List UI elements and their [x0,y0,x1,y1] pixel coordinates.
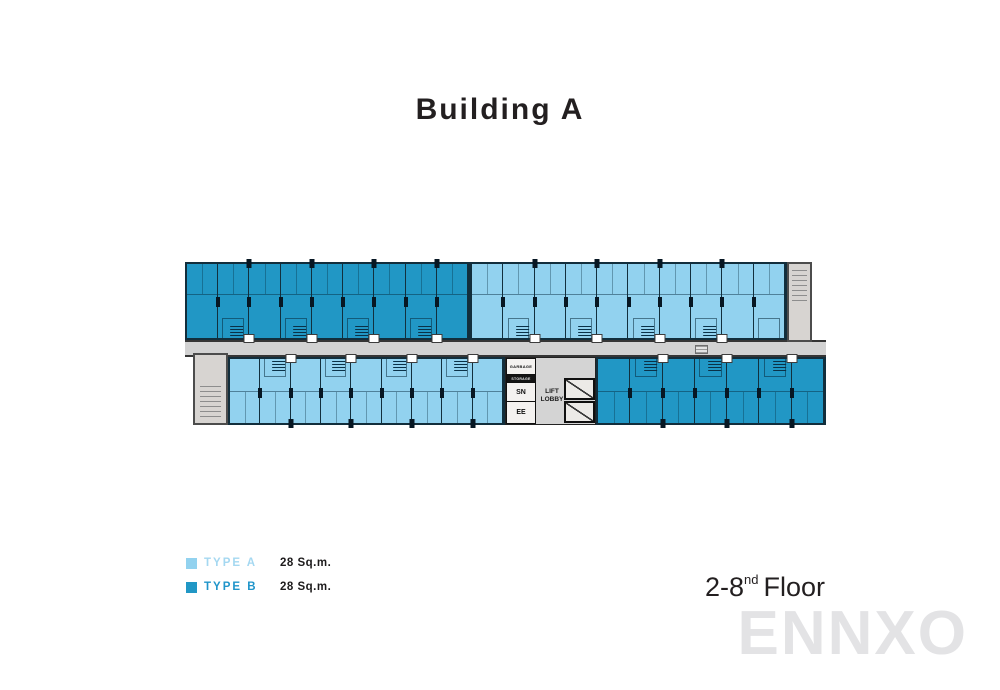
window-mark [720,259,725,268]
wall-column-mark [279,297,283,307]
bottom-band: GARBAGE STORAGE SN EE LIFT LOBBY [185,357,826,425]
wall-column-mark [757,388,761,398]
bathroom-plumbing-icon [355,326,368,336]
bathroom-plumbing-icon [293,326,306,336]
sn-room: SN [506,383,536,402]
unit-door [369,334,380,343]
window-mark [595,259,600,268]
unit-door [306,334,317,343]
ee-room: EE [506,402,536,424]
wall-column-mark [628,388,632,398]
bathroom-plumbing-icon [272,361,285,371]
unit-type-a [722,264,753,338]
window-mark [349,419,354,428]
bathroom-plumbing-icon [773,361,786,371]
bathroom-plumbing-icon [231,326,244,336]
unit-door [407,354,418,363]
bathroom-plumbing-icon [641,326,654,336]
building-plan: GARBAGE STORAGE SN EE LIFT LOBBY [185,262,826,425]
floorplan-page: Building A GARBAGE STORAGE SN EE [0,0,1000,690]
window-mark [247,259,252,268]
wall-column-mark [658,297,662,307]
unit-door [657,354,668,363]
bathroom-plumbing-icon [578,326,591,336]
storage-room: STORAGE [506,375,536,383]
unit-door [467,354,478,363]
lift-icon [564,378,595,400]
type-b-area: 28 Sq.m. [280,581,331,593]
unit-type-b [437,264,468,338]
wall-column-mark [595,297,599,307]
window-mark [470,419,475,428]
window-mark [434,259,439,268]
type-b-swatch [186,582,197,593]
wall-column-mark [404,297,408,307]
wall-column-mark [564,297,568,307]
bathroom-plumbing-icon [418,326,431,336]
unit-type-a [412,359,442,423]
wall-column-mark [752,297,756,307]
window-mark [789,419,794,428]
type-b-label: TYPE B [204,581,280,593]
wall-column-mark [501,297,505,307]
ennxo-watermark: ENNXO [738,598,968,669]
stairwell-left [193,353,228,425]
unit-row-bottom-type-a [228,357,505,425]
unit-door [529,334,540,343]
legend: TYPE A 28 Sq.m. TYPE B 28 Sq.m. [186,556,331,604]
unit-type-a [754,264,785,338]
type-a-swatch [186,558,197,569]
lift-shafts [564,378,595,424]
wall-column-mark [689,297,693,307]
wall-column-mark [247,297,251,307]
wall-column-mark [435,297,439,307]
type-a-label: TYPE A [204,557,280,569]
unit-door [654,334,665,343]
bathroom-plumbing-icon [708,361,721,371]
unit-row-bottom-type-b [596,357,826,425]
bathroom-plumbing-icon [704,326,717,336]
legend-item-type-b: TYPE B 28 Sq.m. [186,580,331,594]
wall-column-mark [319,388,323,398]
unit-type-a [472,264,503,338]
fire-hose-icon [695,345,708,354]
unit-type-b [663,359,695,423]
legend-item-type-a: TYPE A 28 Sq.m. [186,556,331,570]
unit-door [346,354,357,363]
lift-icon [564,401,595,423]
unit-type-a [473,359,503,423]
wall-column-mark [661,388,665,398]
wall-column-mark [372,297,376,307]
unit-type-b [187,264,218,338]
unit-door [285,354,296,363]
core-room-column: GARBAGE STORAGE SN EE [506,358,536,424]
bathroom-plumbing-icon [393,361,406,371]
bathroom-plumbing-icon [516,326,529,336]
bathroom-plumbing-icon [332,361,345,371]
unit-type-b [792,359,824,423]
type-a-area: 28 Sq.m. [280,557,331,569]
unit-door [717,334,728,343]
wall-column-mark [627,297,631,307]
stair-treads-icon [200,386,222,419]
stairwell-right [787,262,812,342]
unit-door [431,334,442,343]
window-mark [288,419,293,428]
wall-column-mark [349,388,353,398]
window-mark [372,259,377,268]
wall-column-mark [410,388,414,398]
unit-type-b [598,359,630,423]
unit-type-a [535,264,566,338]
wall-column-mark [471,388,475,398]
service-core: GARBAGE STORAGE SN EE LIFT LOBBY [505,357,596,425]
window-mark [725,419,730,428]
wall-column-mark [341,297,345,307]
unit-type-b [249,264,280,338]
stair-treads-icon [792,270,807,304]
wall-column-mark [790,388,794,398]
unit-type-a [291,359,321,423]
wall-column-mark [380,388,384,398]
bathroom-plumbing-icon [644,361,657,371]
floor-ordinal: nd [744,572,758,587]
unit-door [722,354,733,363]
unit-type-a [597,264,628,338]
unit-type-b [312,264,343,338]
wall-column-mark [725,388,729,398]
unit-type-a [660,264,691,338]
unit-door [244,334,255,343]
wall-column-mark [310,297,314,307]
wall-column-mark [440,388,444,398]
window-mark [309,259,314,268]
wall-column-mark [258,388,262,398]
wall-column-mark [533,297,537,307]
unit-type-b [374,264,405,338]
wall-column-mark [216,297,220,307]
page-title: Building A [0,93,1000,127]
unit-door [786,354,797,363]
window-mark [532,259,537,268]
window-mark [410,419,415,428]
bathroom-plumbing-icon [454,361,467,371]
window-mark [657,259,662,268]
unit-row-top-type-b [185,262,470,340]
unit-type-a [230,359,260,423]
unit-door [592,334,603,343]
unit-row-top-type-a [470,262,787,340]
wall-column-mark [720,297,724,307]
garbage-room: GARBAGE [506,358,536,375]
wall-column-mark [693,388,697,398]
wall-column-mark [289,388,293,398]
window-mark [660,419,665,428]
unit-type-b [727,359,759,423]
unit-type-a [351,359,381,423]
